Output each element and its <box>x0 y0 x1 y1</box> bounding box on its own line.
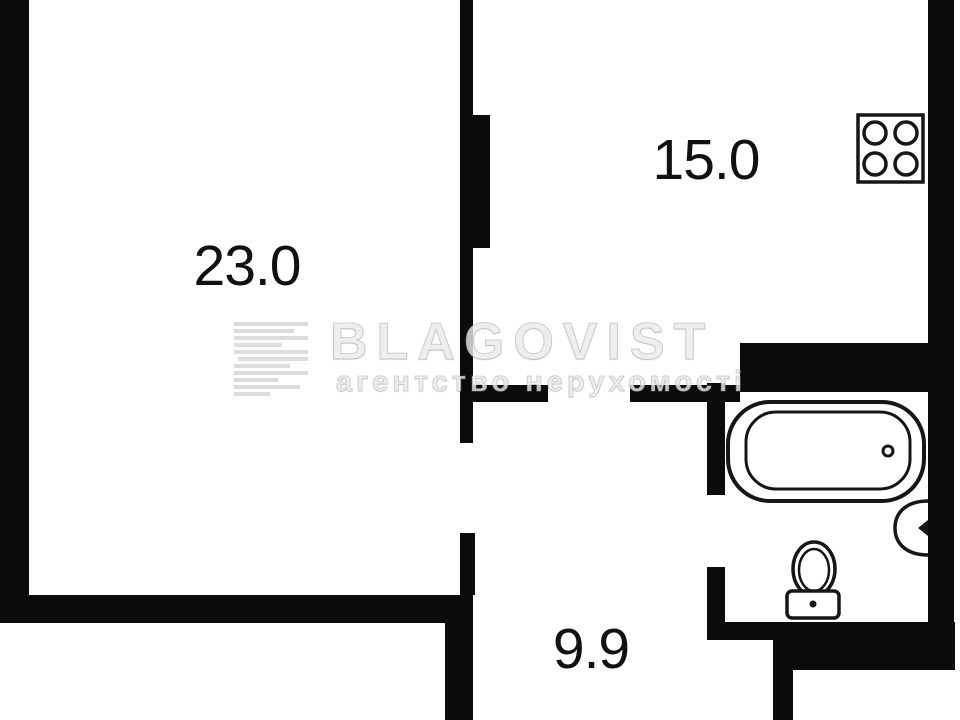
wall-left-exterior <box>0 0 29 623</box>
toilet-icon <box>780 538 844 622</box>
living-room-area-label: 23.0 <box>127 238 367 295</box>
wall-bathroom-left-upper <box>707 383 725 495</box>
wall-divider-thick <box>460 115 490 248</box>
wall-right-exterior <box>928 0 954 670</box>
kitchen-area-label: 15.0 <box>586 132 826 189</box>
hallway-area-label: 9.9 <box>501 621 681 678</box>
wall-living-bottom <box>0 595 470 623</box>
wall-kitchen-bottom-left <box>473 385 548 402</box>
wall-bathroom-top <box>740 343 930 392</box>
stove-icon <box>855 112 926 185</box>
bathtub-icon <box>725 399 927 504</box>
wall-divider-top <box>460 0 473 115</box>
sink-icon <box>892 498 930 558</box>
wall-divider-middle <box>460 248 473 443</box>
wall-bathroom-left-lower <box>707 567 725 628</box>
wall-divider-lower <box>460 533 475 595</box>
wall-bottom-right-block <box>793 622 955 670</box>
floorplan-canvas: 23.0 15.0 9.9 <box>0 0 960 720</box>
agency-logo-icon <box>232 322 312 400</box>
wall-hallway-right <box>773 622 793 720</box>
